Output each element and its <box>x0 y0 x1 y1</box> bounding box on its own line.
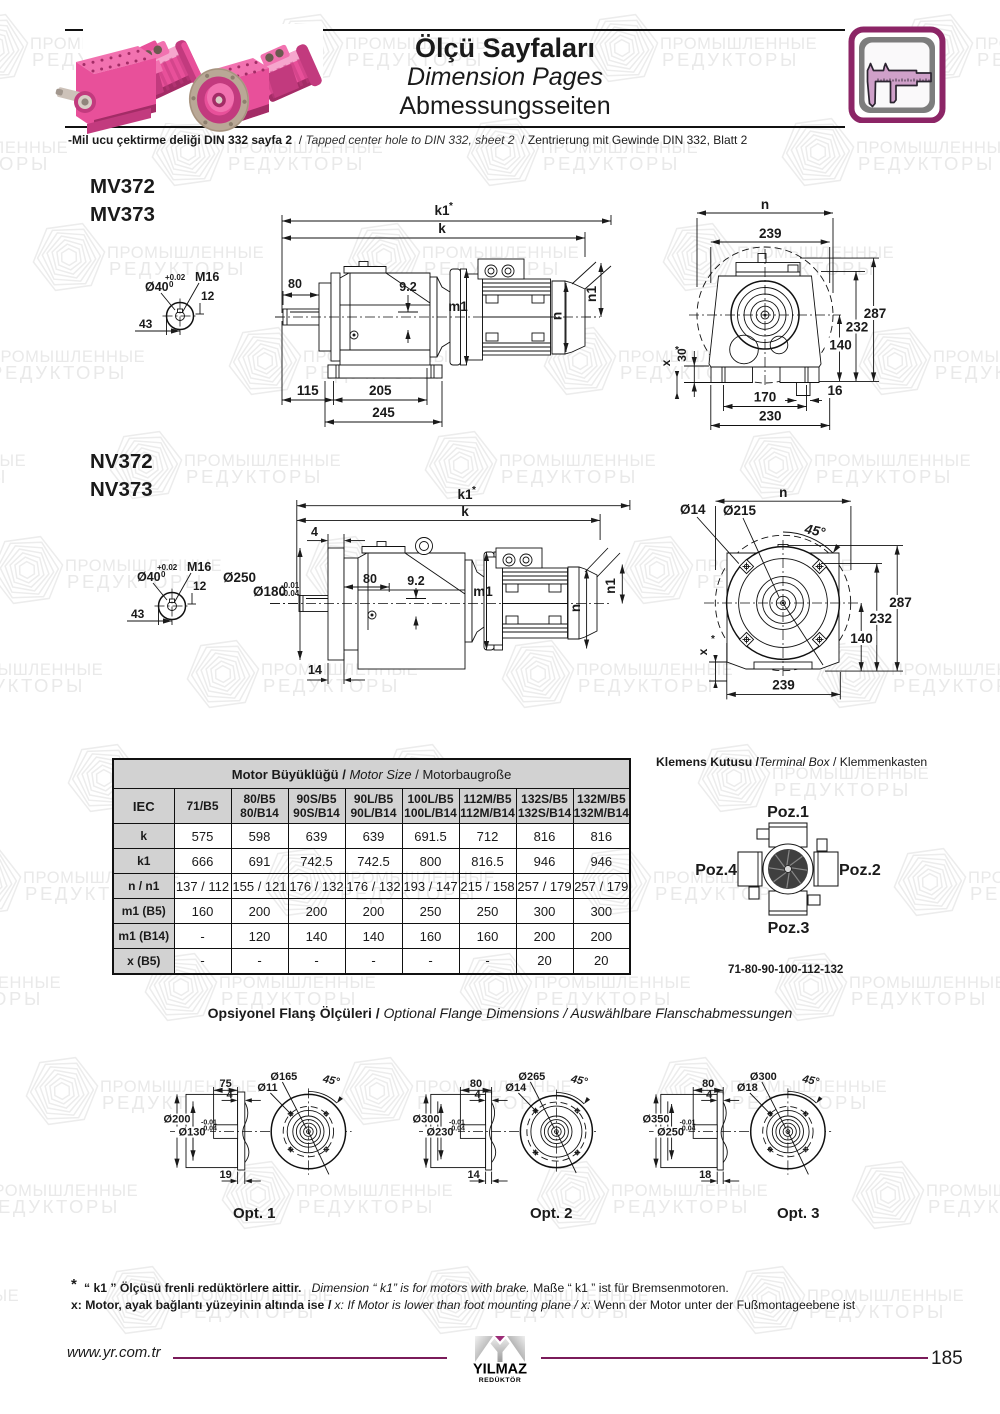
svg-text:4: 4 <box>227 1089 234 1101</box>
svg-text:Ø40: Ø40 <box>137 570 161 584</box>
svg-text:Ø250: Ø250 <box>223 570 256 585</box>
svg-text:205: 205 <box>369 383 392 398</box>
svg-text:232: 232 <box>846 320 869 335</box>
svg-text:REDÜKTÖR: REDÜKTÖR <box>479 1375 522 1384</box>
svg-text:19: 19 <box>219 1169 231 1181</box>
svg-text:x: x <box>659 359 673 366</box>
svg-text:45°: 45° <box>802 521 827 540</box>
svg-text:239: 239 <box>772 677 795 692</box>
svg-text:YILMAZ: YILMAZ <box>473 1362 527 1378</box>
svg-text:45°: 45° <box>800 1073 820 1089</box>
svg-text:30: 30 <box>675 348 689 362</box>
svg-text:4: 4 <box>706 1089 713 1101</box>
svg-text:n1: n1 <box>603 578 618 594</box>
svg-text:n: n <box>549 312 565 321</box>
svg-text:n: n <box>568 604 583 612</box>
svg-text:k: k <box>461 504 469 519</box>
svg-text:4: 4 <box>475 1089 482 1101</box>
svg-text:m1: m1 <box>473 584 493 599</box>
svg-text:140: 140 <box>829 338 852 353</box>
svg-text:14: 14 <box>308 663 322 677</box>
svg-text:18: 18 <box>699 1169 711 1181</box>
svg-text:0: 0 <box>169 280 174 289</box>
svg-text:45°: 45° <box>321 1073 341 1089</box>
svg-text:Poz.3: Poz.3 <box>768 920 810 937</box>
svg-text:k: k <box>438 221 446 236</box>
svg-text:232: 232 <box>870 611 893 626</box>
svg-text:16: 16 <box>827 383 843 398</box>
svg-text:170: 170 <box>754 390 777 405</box>
svg-text:Poz.2: Poz.2 <box>839 862 881 879</box>
svg-text:-0.04: -0.04 <box>281 589 300 598</box>
svg-text:-0.04: -0.04 <box>449 1126 465 1133</box>
svg-text:115: 115 <box>297 383 319 398</box>
svg-text:M16: M16 <box>187 560 211 574</box>
svg-text:9.2: 9.2 <box>407 574 424 588</box>
svg-text:Ø200: Ø200 <box>164 1114 191 1126</box>
svg-text:0: 0 <box>161 570 166 579</box>
svg-text:k1: k1 <box>434 203 450 218</box>
svg-text:80: 80 <box>288 277 302 291</box>
svg-text:Ø300: Ø300 <box>413 1114 440 1126</box>
svg-text:k1: k1 <box>457 487 473 502</box>
svg-text:-0.04: -0.04 <box>201 1126 217 1133</box>
svg-text:287: 287 <box>889 595 912 610</box>
svg-text:Ø350: Ø350 <box>643 1114 670 1126</box>
svg-text:x: x <box>696 648 710 655</box>
svg-text:M16: M16 <box>195 270 219 284</box>
svg-text:Ø14: Ø14 <box>505 1082 527 1094</box>
svg-text:*: * <box>472 485 476 496</box>
svg-text:12: 12 <box>201 289 215 303</box>
svg-text:43: 43 <box>139 317 153 331</box>
svg-text:14: 14 <box>467 1169 480 1181</box>
svg-text:Ø215: Ø215 <box>723 503 757 518</box>
svg-text:9.2: 9.2 <box>399 280 416 294</box>
svg-text:Poz.1: Poz.1 <box>767 804 809 821</box>
svg-text:n1: n1 <box>583 286 599 303</box>
svg-text:*: * <box>449 201 453 212</box>
svg-text:230: 230 <box>759 409 782 424</box>
svg-text:Ø18: Ø18 <box>737 1082 758 1094</box>
svg-text:12: 12 <box>193 579 207 593</box>
svg-text:n: n <box>779 485 787 500</box>
svg-text:Ø11: Ø11 <box>257 1082 277 1094</box>
svg-text:m1: m1 <box>448 299 468 314</box>
svg-text:n: n <box>761 197 769 212</box>
svg-text:80: 80 <box>363 572 377 586</box>
svg-text:4: 4 <box>311 525 318 539</box>
svg-text:43: 43 <box>131 607 145 621</box>
svg-text:Poz.4: Poz.4 <box>695 862 737 879</box>
svg-text:Ø14: Ø14 <box>680 502 706 517</box>
svg-text:45°: 45° <box>569 1073 589 1089</box>
svg-text:Ø40: Ø40 <box>145 280 169 294</box>
svg-text:-0.04: -0.04 <box>680 1126 696 1133</box>
svg-text:245: 245 <box>372 405 395 420</box>
svg-text:140: 140 <box>850 631 873 646</box>
svg-text:*: * <box>711 634 715 645</box>
svg-text:239: 239 <box>759 226 782 241</box>
